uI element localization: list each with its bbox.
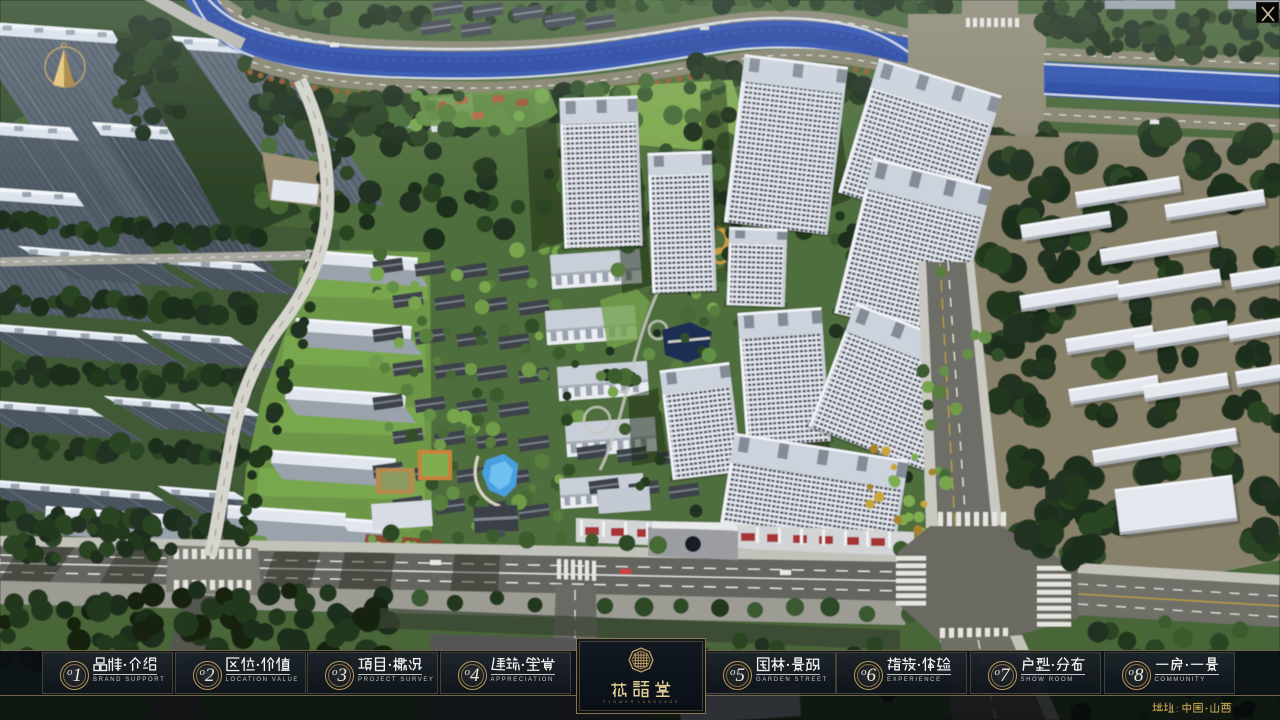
svg-text::: :: [1176, 704, 1180, 714]
